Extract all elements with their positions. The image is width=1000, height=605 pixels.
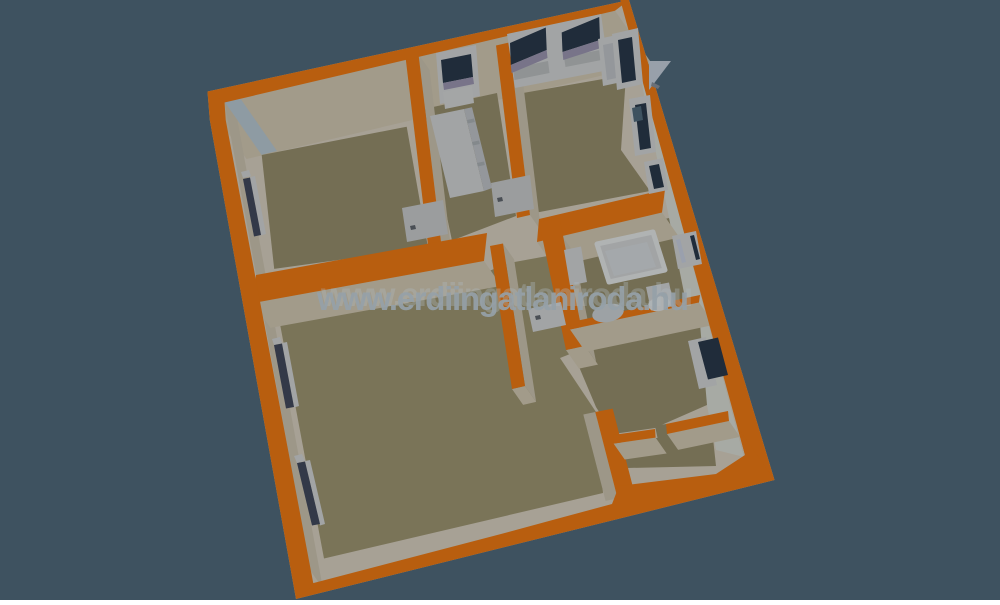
svg-text:www.erdiingatlaniroda.hu: www.erdiingatlaniroda.hu bbox=[316, 280, 689, 317]
